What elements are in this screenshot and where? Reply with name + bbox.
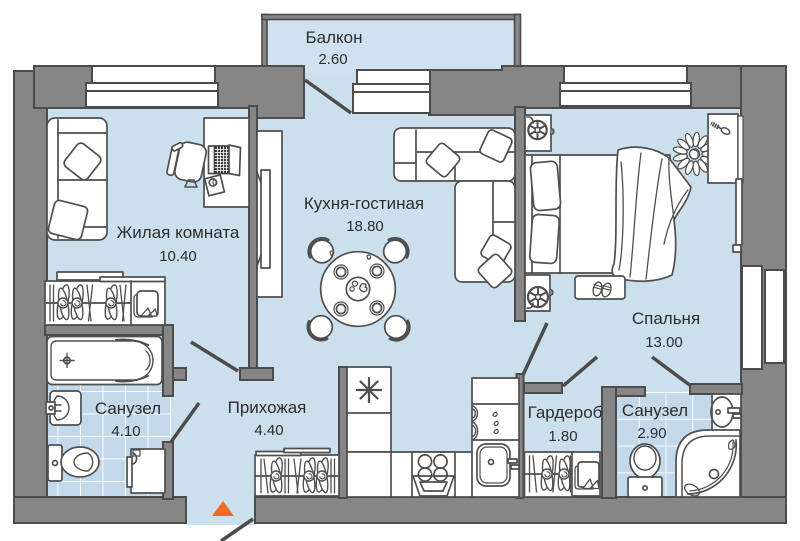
svg-text:2.60: 2.60 <box>318 51 347 68</box>
svg-text:2.90: 2.90 <box>637 425 666 442</box>
svg-text:Кухня-гостиная: Кухня-гостиная <box>304 194 424 213</box>
svg-text:Балкон: Балкон <box>305 28 362 47</box>
svg-text:4.40: 4.40 <box>254 422 283 439</box>
svg-text:Прихожая: Прихожая <box>228 398 307 417</box>
svg-text:Жилая комната: Жилая комната <box>117 223 240 242</box>
svg-text:18.80: 18.80 <box>346 218 384 235</box>
svg-text:4.10: 4.10 <box>111 423 140 440</box>
svg-text:Спальня: Спальня <box>632 309 700 328</box>
svg-text:Санузел: Санузел <box>95 399 161 418</box>
svg-text:1.80: 1.80 <box>548 428 577 445</box>
svg-text:10.40: 10.40 <box>159 248 197 265</box>
svg-text:Санузел: Санузел <box>622 401 688 420</box>
svg-text:Гардероб: Гардероб <box>528 403 603 422</box>
svg-text:13.00: 13.00 <box>645 334 683 351</box>
